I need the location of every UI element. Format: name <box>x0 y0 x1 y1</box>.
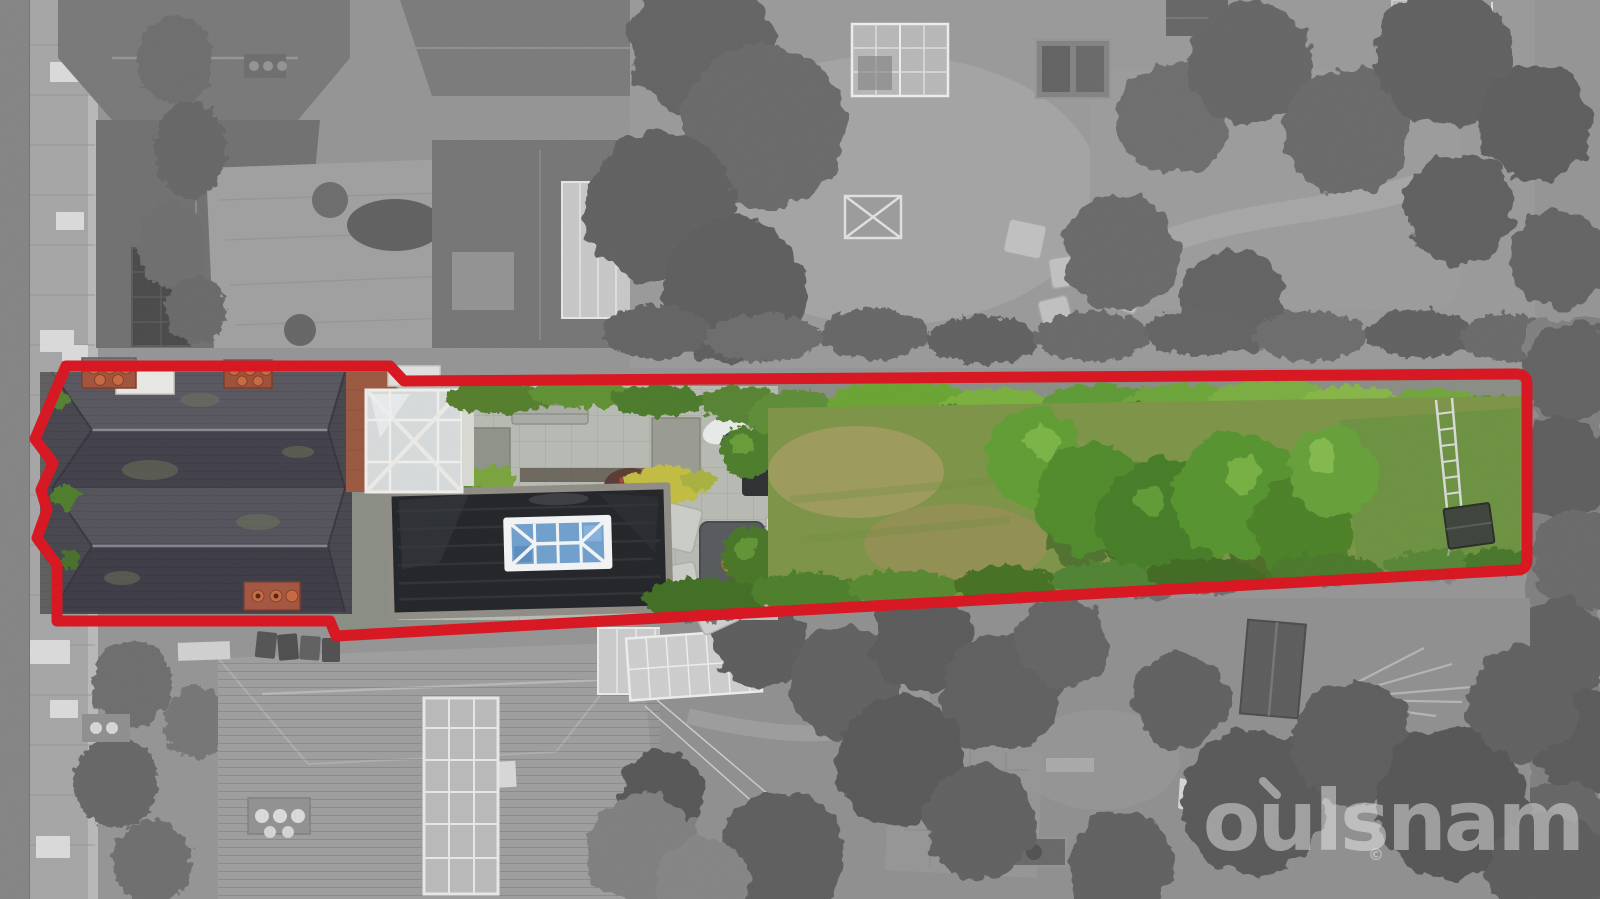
aerial-photo-canvas: oulsnam © <box>0 0 1600 899</box>
photo-grain-overlay <box>0 0 1600 899</box>
aerial-photo: oulsnam © <box>0 0 1600 899</box>
watermark: oulsnam © <box>1203 772 1582 870</box>
watermark-logo-text: oulsnam <box>1203 772 1582 870</box>
watermark-copyright-symbol: © <box>1368 845 1384 864</box>
